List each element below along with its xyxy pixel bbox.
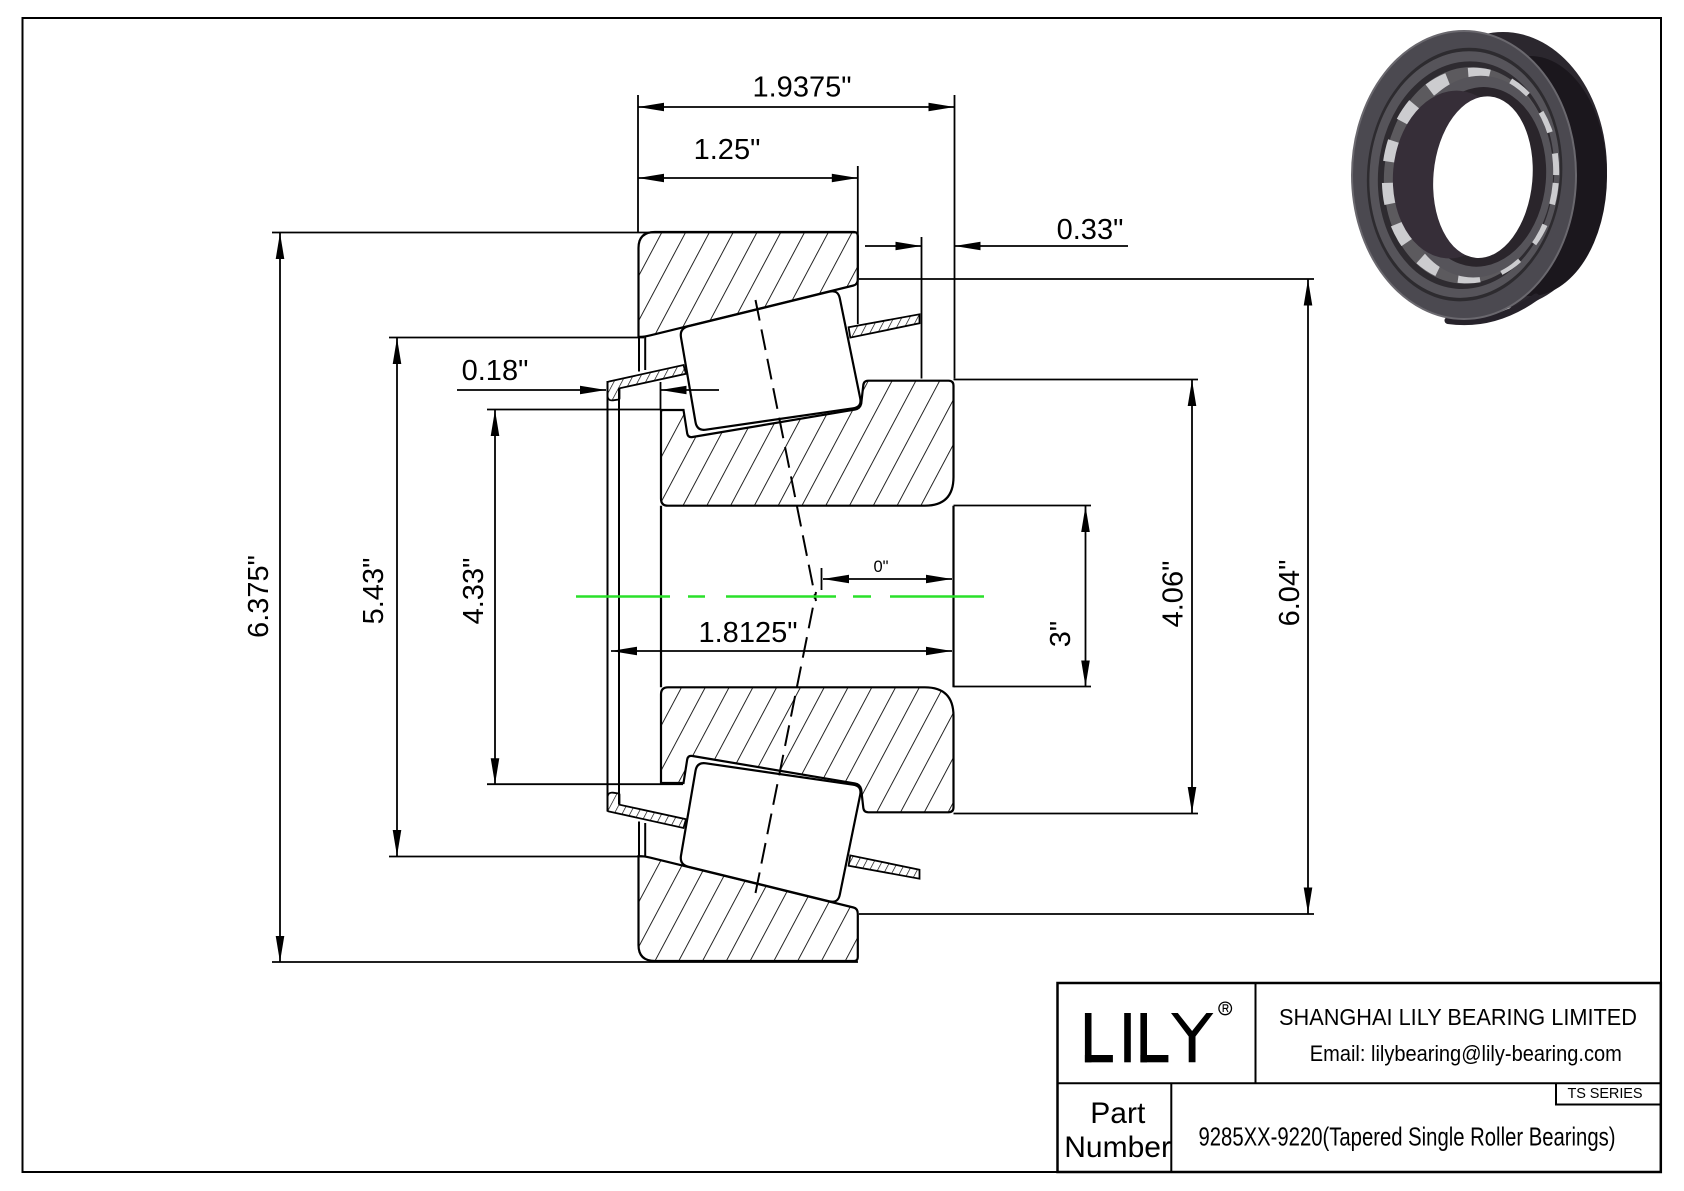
svg-text:Email: lilybearing@lily-bearin: Email: lilybearing@lily-bearing.com [1310, 1041, 1622, 1066]
svg-text:SHANGHAI LILY BEARING LIMITED: SHANGHAI LILY BEARING LIMITED [1279, 1004, 1637, 1030]
svg-text:Number: Number [1064, 1131, 1171, 1164]
svg-text:0.33": 0.33" [1057, 214, 1124, 246]
svg-text:0": 0" [873, 558, 888, 576]
svg-text:TS SERIES: TS SERIES [1568, 1086, 1643, 1102]
svg-text:3": 3" [1045, 621, 1077, 647]
svg-text:4.33": 4.33" [458, 558, 490, 625]
svg-text:6.04": 6.04" [1274, 560, 1306, 627]
svg-text:0.18": 0.18" [462, 355, 529, 387]
svg-text:6.375": 6.375" [243, 555, 275, 638]
svg-text:1.8125": 1.8125" [699, 617, 798, 649]
svg-text:9285XX-9220(Tapered Single Rol: 9285XX-9220(Tapered Single Roller Bearin… [1199, 1122, 1616, 1152]
svg-text:4.06": 4.06" [1158, 561, 1190, 628]
svg-text:1.25": 1.25" [694, 134, 761, 166]
svg-text:1.9375": 1.9375" [753, 72, 852, 104]
svg-text:5.43": 5.43" [358, 558, 390, 625]
svg-text:Part: Part [1090, 1097, 1146, 1130]
